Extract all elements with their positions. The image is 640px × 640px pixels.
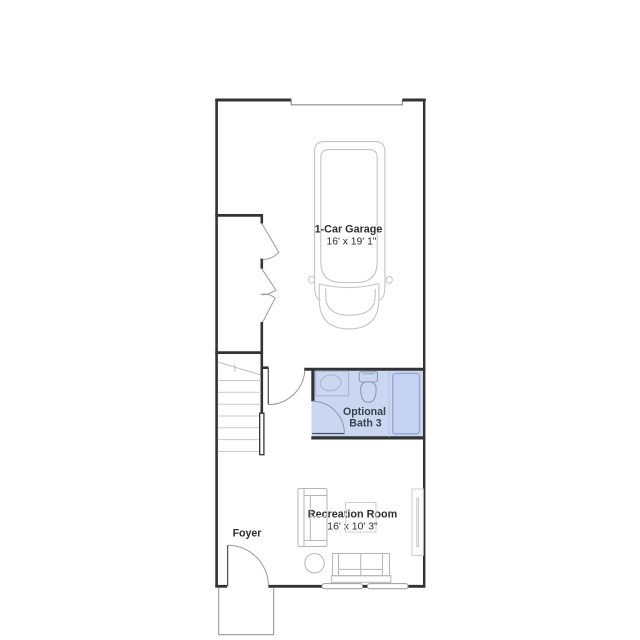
svg-text:1-Car Garage: 1-Car Garage: [315, 224, 383, 236]
svg-text:Recreation Room: Recreation Room: [308, 509, 397, 521]
svg-text:Bath 3: Bath 3: [349, 418, 381, 430]
svg-text:16' x 10' 3": 16' x 10' 3": [327, 522, 378, 533]
svg-text:Optional: Optional: [343, 406, 386, 418]
svg-text:16' x 19' 1": 16' x 19' 1": [327, 237, 377, 248]
svg-text:Foyer: Foyer: [233, 528, 262, 540]
